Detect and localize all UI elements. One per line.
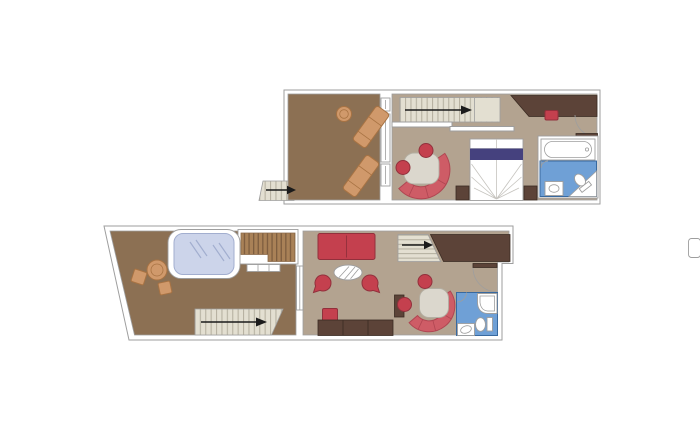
round-chair: [398, 298, 412, 312]
washbasin: [458, 324, 475, 336]
washbasin: [545, 182, 563, 196]
cropped-fixture-fragment: [689, 239, 700, 258]
nightstand: [524, 186, 537, 200]
red-bench: [545, 111, 558, 121]
whirlpool-bath: [168, 230, 240, 279]
sofa-table: [420, 289, 449, 318]
upper-bathroom: [538, 136, 598, 198]
door-leaf: [473, 264, 497, 268]
bed-runner: [470, 149, 523, 161]
whirlpool-water: [174, 234, 234, 275]
round-chair: [418, 275, 432, 289]
upper-floor-plan: [259, 90, 600, 204]
toilet-tank: [487, 318, 493, 332]
glass-rail: [247, 265, 280, 272]
nightstand: [456, 186, 469, 200]
sideboard: [318, 320, 393, 336]
lower-wardrobe: [431, 235, 511, 262]
page-background: [0, 0, 700, 433]
stair-landing: [475, 98, 500, 122]
lower-floor-plan: [104, 226, 513, 340]
interior-wall: [392, 122, 452, 127]
round-chair: [396, 161, 410, 175]
balcony-round-table: [337, 107, 352, 122]
upper-staircase: [400, 98, 500, 123]
terrace-staircase: [195, 309, 283, 335]
outdoor-chair: [158, 281, 172, 295]
chair-seat: [158, 281, 172, 295]
round-chair: [419, 144, 433, 158]
toilet-bowl: [476, 318, 486, 332]
lower-bathroom: [457, 293, 498, 336]
outdoor-round-table: [147, 260, 167, 280]
floor-plan-canvas: [0, 0, 700, 433]
interior-wall: [450, 127, 514, 132]
